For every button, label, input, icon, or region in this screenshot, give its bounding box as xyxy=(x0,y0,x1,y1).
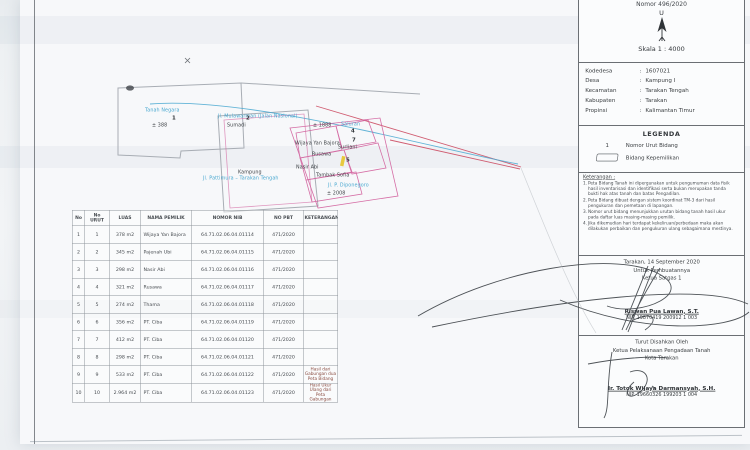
table-row: 88298 m2PT. Ciba64.71.02.06.04.01121471/… xyxy=(72,348,338,366)
info-value: 1607021 xyxy=(645,66,670,76)
table-cell: 2 xyxy=(72,243,85,261)
table-cell: 64.71.02.06.04.01120 xyxy=(191,331,264,349)
table-cell: 2 xyxy=(85,243,110,261)
map-label: Nasir Abi xyxy=(296,165,319,170)
info-value: Kalimantan Timur xyxy=(645,106,694,116)
table-cell xyxy=(303,243,338,261)
table-cell: 5 xyxy=(85,296,110,314)
table-cell: 8 xyxy=(72,348,85,366)
location-info-row: Kodedesa1607021 xyxy=(585,66,740,76)
surveyor-name: Riswan Pua Lawan, S.T. xyxy=(579,307,744,314)
table-cell xyxy=(303,331,338,349)
sheet-number: Nomor 496/2020 xyxy=(579,0,744,8)
map-label: Saluran xyxy=(341,122,360,127)
table-header: NAMA PEMILIK xyxy=(141,210,192,226)
table-cell: 1 xyxy=(85,226,110,244)
table-cell: 64.71.02.06.04.01115 xyxy=(191,243,264,261)
approval-signoff-wrap: Turut Disahkan Oleh Ketua Pelaksanaan Pe… xyxy=(579,336,744,397)
parcel-number-label: 4 xyxy=(351,129,355,134)
table-cell: 3 xyxy=(85,261,110,279)
table-cell: 64.71.02.06.04.01119 xyxy=(191,313,264,331)
legend-item: 1Nomor Urut Bidang xyxy=(589,139,744,152)
info-label: Propinsi xyxy=(585,106,640,116)
legend-title: LEGENDA xyxy=(579,126,744,138)
table-cell: 64.71.02.06.04.01114 xyxy=(191,226,264,244)
table-cell: 321 m2 xyxy=(109,278,141,296)
map-label: Tambak Sofia xyxy=(316,173,349,178)
table-header: KETERANGAN xyxy=(303,210,338,226)
table-row: 99533 m2PT. Ciba64.71.02.06.04.01122471/… xyxy=(72,366,338,384)
map-label: ± 388 xyxy=(152,123,167,128)
note-item: Peta Bidang dibuat dengan sistem koordin… xyxy=(583,198,733,209)
table-cell: 10 xyxy=(72,383,85,402)
section-notes: Keterangan : Peta Bidang Tanah ini diper… xyxy=(579,173,744,256)
north-arrow-icon xyxy=(650,17,674,43)
notes-title: Keterangan : xyxy=(583,175,733,181)
ink-smudge xyxy=(126,85,134,90)
approval-line3: Kota Tarakan xyxy=(579,354,744,362)
info-label: Kecamatan xyxy=(585,86,640,96)
table-cell: 1 xyxy=(72,226,85,244)
table-cell: Thama xyxy=(141,296,192,314)
table-row: 11378 m2Wijaya Yan Bajora64.71.02.06.04.… xyxy=(72,226,338,244)
signoff-place-date: Tarakan, 14 September 2020 xyxy=(579,258,744,266)
table-cell: PT. Ciba xyxy=(141,366,192,384)
approval-nip: NIP. 19660326 199203 1 004 xyxy=(579,391,744,397)
table-cell: 378 m2 xyxy=(109,226,141,244)
table-row: 22345 m2Pajenah Ubi64.71.02.06.04.011154… xyxy=(72,243,338,261)
table-cell: Pajenah Ubi xyxy=(141,243,192,261)
table-cell xyxy=(303,226,338,244)
table-head: NoNo URUTLUASNAMA PEMILIKNOMOR NIBNO PBT… xyxy=(72,210,338,226)
page-border-line xyxy=(34,0,35,444)
north-label: U xyxy=(579,9,744,17)
signoff-role: Ketua Satgas 1 xyxy=(579,274,744,282)
table-cell: Rusawa xyxy=(141,278,192,296)
table-cell: 64.71.02.06.04.01121 xyxy=(191,348,264,366)
map-label: Kampung xyxy=(238,170,262,175)
survey-tick xyxy=(185,58,190,63)
table-body: 11378 m2Wijaya Yan Bajora64.71.02.06.04.… xyxy=(72,226,338,403)
parcel-number-label: 7 xyxy=(352,138,356,143)
table-row: 77412 m2PT. Ciba64.71.02.06.04.01120471/… xyxy=(72,331,338,349)
parcel-map-drawing xyxy=(100,52,580,222)
legend-symbol xyxy=(589,153,626,163)
table-cell: 471/2020 xyxy=(264,226,304,244)
map-label: ± 2008 xyxy=(327,191,345,196)
map-label: Sumadi xyxy=(227,123,246,128)
table-cell xyxy=(303,313,338,331)
table-header: No xyxy=(72,210,85,226)
map-label: ± 1888 xyxy=(313,123,331,128)
table-cell: 298 m2 xyxy=(109,261,141,279)
table-cell: 4 xyxy=(72,278,85,296)
section-legend: LEGENDA 1Nomor Urut BidangBidang Kepemil… xyxy=(579,126,744,173)
legend-items: 1Nomor Urut BidangBidang Kepemilikan xyxy=(579,138,744,164)
table-cell: 3 xyxy=(72,261,85,279)
table-cell: 64.71.02.06.04.01117 xyxy=(191,278,264,296)
scale-label: Skala 1 : 4000 xyxy=(579,45,744,53)
parcel-middle xyxy=(224,114,312,208)
map-outline-top-line xyxy=(241,83,420,94)
table-header: No URUT xyxy=(85,210,110,226)
table-header-row: NoNo URUTLUASNAMA PEMILIKNOMOR NIBNO PBT… xyxy=(72,210,338,226)
map-label: Jl. Pattimura – Tarakan Tengah xyxy=(203,176,279,181)
owners-table-wrap: NoNo URUTLUASNAMA PEMILIKNOMOR NIBNO PBT… xyxy=(72,210,338,403)
map-label: Jl. Mulawarman (Jalan Nasional) xyxy=(218,114,297,119)
section-surveyor-signoff: Tarakan, 14 September 2020 Untuk Pembuat… xyxy=(579,256,744,336)
table-header: NO PBT xyxy=(264,210,304,226)
table-cell: 471/2020 xyxy=(264,331,304,349)
table-cell: 9 xyxy=(85,366,110,384)
notes-scale-wrap: Keterangan : Peta Bidang Tanah ini diper… xyxy=(579,173,735,232)
info-value: Kampung I xyxy=(645,76,675,86)
table-cell: PT. Ciba xyxy=(141,348,192,366)
table-cell: 64.71.02.06.04.01122 xyxy=(191,366,264,384)
table-cell: 412 m2 xyxy=(109,331,141,349)
table-cell: 471/2020 xyxy=(264,366,304,384)
table-cell xyxy=(303,278,338,296)
table-cell: 471/2020 xyxy=(264,243,304,261)
map-label: Wijaya Yan Bajora xyxy=(295,141,340,146)
boundary-red-line xyxy=(390,140,520,169)
table-cell: Hasil Ukur Ulang dari Peta Gabungan xyxy=(303,383,338,402)
table-cell: 5 xyxy=(72,296,85,314)
parcel-number-label: 2 xyxy=(246,116,250,121)
info-value: Tarakan xyxy=(645,96,667,106)
legend-label: Nomor Urut Bidang xyxy=(626,143,678,149)
info-label: Desa xyxy=(585,76,640,86)
table-header: LUAS xyxy=(109,210,141,226)
title-block: Nomor 496/2020 U Skala 1 : 4000 Kodedesa… xyxy=(578,0,745,428)
table-cell: 4 xyxy=(85,278,110,296)
map-outline-left-block xyxy=(118,83,244,158)
map-label: Surliani xyxy=(338,145,357,150)
table-cell: PT. Ciba xyxy=(141,383,192,402)
note-item: Jika dikemudian hari terdapat kekeliruan… xyxy=(583,221,733,232)
approval-line1: Turut Disahkan Oleh xyxy=(579,338,744,346)
table-header: NOMOR NIB xyxy=(191,210,264,226)
approval-line2: Ketua Pelaksanaan Pengadaan Tanah xyxy=(579,346,744,354)
location-info-row: KecamatanTarakan Tengah xyxy=(585,86,740,96)
table-cell: 345 m2 xyxy=(109,243,141,261)
table-cell xyxy=(303,261,338,279)
surveyor-nip: NIP. 19870419 200912 1 003 xyxy=(579,314,744,320)
note-item: Peta Bidang Tanah ini dipergunakan untuk… xyxy=(583,181,733,197)
table-cell: 6 xyxy=(85,313,110,331)
info-value: Tarakan Tengah xyxy=(645,86,688,96)
table-cell: 471/2020 xyxy=(264,313,304,331)
table-cell: 2.964 m2 xyxy=(109,383,141,402)
info-label: Kodedesa xyxy=(585,66,640,76)
table-cell: 64.71.02.06.04.01123 xyxy=(191,383,264,402)
parcel-map: Tanah Negara1± 388Jl. Mulawarman (Jalan … xyxy=(100,52,580,222)
highlight-marker xyxy=(340,156,346,167)
section-location-info: Kodedesa1607021DesaKampung IKecamatanTar… xyxy=(579,63,744,126)
table-row: 66356 m2PT. Ciba64.71.02.06.04.01119471/… xyxy=(72,313,338,331)
table-cell: 9 xyxy=(72,366,85,384)
table-cell: 356 m2 xyxy=(109,313,141,331)
table-cell: 7 xyxy=(72,331,85,349)
table-row: 33298 m2Nasir Abi64.71.02.06.04.01116471… xyxy=(72,261,338,279)
location-info-row: PropinsiKalimantan Timur xyxy=(585,106,740,116)
table-cell: 7 xyxy=(85,331,110,349)
section-scale-north: Nomor 496/2020 U Skala 1 : 4000 xyxy=(579,0,744,63)
location-info-row: KabupatenTarakan xyxy=(585,96,740,106)
parcel-owners-table: NoNo URUTLUASNAMA PEMILIKNOMOR NIBNO PBT… xyxy=(72,210,338,403)
map-label: Tanah Negara xyxy=(145,108,180,113)
table-cell: PT. Ciba xyxy=(141,313,192,331)
table-cell: 6 xyxy=(72,313,85,331)
table-row: 44321 m2Rusawa64.71.02.06.04.01117471/20… xyxy=(72,278,338,296)
waterline-blue xyxy=(150,103,518,164)
table-cell: 274 m2 xyxy=(109,296,141,314)
notes-list: Peta Bidang Tanah ini dipergunakan untuk… xyxy=(583,181,733,232)
table-cell: 298 m2 xyxy=(109,348,141,366)
table-cell: Wijaya Yan Bajora xyxy=(141,226,192,244)
table-row: 10102.964 m2PT. Ciba64.71.02.06.04.01123… xyxy=(72,383,338,402)
table-cell: 64.71.02.06.04.01118 xyxy=(191,296,264,314)
table-cell: 471/2020 xyxy=(264,261,304,279)
table-cell: 471/2020 xyxy=(264,383,304,402)
table-row: 55274 m2Thama64.71.02.06.04.01118471/202… xyxy=(72,296,338,314)
parcel-number-label: 1 xyxy=(172,116,176,121)
table-cell: Nasir Abi xyxy=(141,261,192,279)
table-cell: 64.71.02.06.04.01116 xyxy=(191,261,264,279)
scanned-cadastral-map-page: Tanah Negara1± 388Jl. Mulawarman (Jalan … xyxy=(0,0,750,450)
parcel-shape-icon xyxy=(596,153,619,161)
table-cell: 8 xyxy=(85,348,110,366)
location-info-rows: Kodedesa1607021DesaKampung IKecamatanTar… xyxy=(579,63,744,116)
map-label: Jl. P. Diponegoro xyxy=(328,183,369,188)
section-approval-signoff: Turut Disahkan Oleh Ketua Pelaksanaan Pe… xyxy=(579,336,744,427)
table-cell: 471/2020 xyxy=(264,278,304,296)
table-cell: 533 m2 xyxy=(109,366,141,384)
table-cell: 471/2020 xyxy=(264,348,304,366)
info-label: Kabupaten xyxy=(585,96,640,106)
table-cell: PT. Ciba xyxy=(141,331,192,349)
signoff-for-line: Untuk Pembuatannya xyxy=(579,266,744,274)
map-label: Rusawa xyxy=(312,152,331,157)
table-cell: 471/2020 xyxy=(264,296,304,314)
note-item: Nomor urut bidang menunjukkan urutan bid… xyxy=(583,210,733,221)
legend-item: Bidang Kepemilikan xyxy=(589,152,744,165)
location-info-row: DesaKampung I xyxy=(585,76,740,86)
surveyor-signoff-wrap: Tarakan, 14 September 2020 Untuk Pembuat… xyxy=(579,256,744,320)
parcel-number-label: 5 xyxy=(346,158,350,163)
table-cell: 10 xyxy=(85,383,110,402)
table-cell xyxy=(303,296,338,314)
approval-name: Ir. Totok Wijaya Darmansyah, S.H. xyxy=(579,384,744,391)
table-cell xyxy=(303,348,338,366)
table-cell: Hasil dari Gabungan dua Peta Bidang xyxy=(303,366,338,384)
legend-label: Bidang Kepemilikan xyxy=(626,155,679,161)
legend-symbol: 1 xyxy=(589,143,626,149)
